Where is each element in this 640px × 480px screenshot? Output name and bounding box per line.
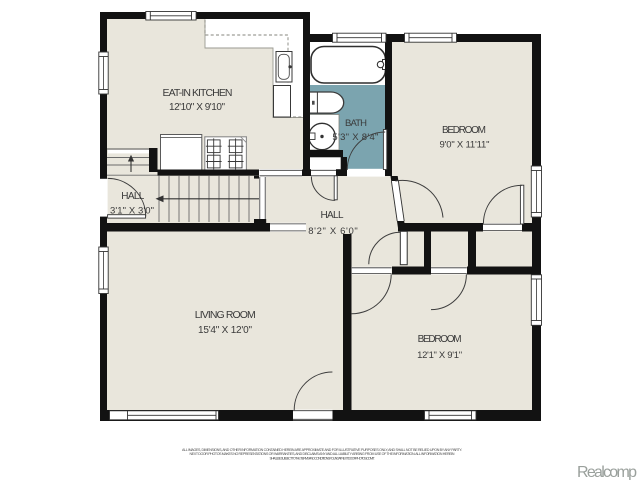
svg-text:HALL: HALL	[321, 210, 344, 221]
svg-text:8'2" X 6'0": 8'2" X 6'0"	[308, 226, 358, 237]
svg-text:5'3" X 8'4": 5'3" X 8'4"	[332, 132, 378, 143]
svg-text:BATH: BATH	[345, 118, 367, 129]
svg-text:HALL: HALL	[121, 191, 144, 202]
svg-text:BEDROOM: BEDROOM	[442, 125, 486, 136]
svg-text:EAT-IN KITCHEN: EAT-IN KITCHEN	[163, 87, 233, 99]
svg-text:9'0" X 11'11": 9'0" X 11'11"	[440, 140, 490, 151]
svg-text:Realcomp: Realcomp	[577, 464, 637, 480]
svg-text:LIVING ROOM: LIVING ROOM	[195, 309, 256, 321]
svg-text:15'4" X 12'0": 15'4" X 12'0"	[198, 325, 252, 336]
svg-text:SHALL BE SUBJECT TO THE TERMS: SHALL BE SUBJECT TO THE TERMS AND CONDIT…	[269, 457, 375, 461]
svg-text:ALL IMAGES, DIMENSIONS, AND OT: ALL IMAGES, DIMENSIONS, AND OTHER INFORM…	[182, 448, 462, 452]
svg-text:12'1" X 9'1": 12'1" X 9'1"	[417, 350, 462, 361]
svg-text:NEXT DOOR PHOTOS MAKES NO REPR: NEXT DOOR PHOTOS MAKES NO REPRESENTATION…	[189, 452, 454, 456]
svg-text:3'1" X 3'0": 3'1" X 3'0"	[110, 206, 154, 217]
svg-text:BEDROOM: BEDROOM	[418, 334, 462, 345]
svg-text:12'10" X 9'10": 12'10" X 9'10"	[169, 102, 225, 113]
